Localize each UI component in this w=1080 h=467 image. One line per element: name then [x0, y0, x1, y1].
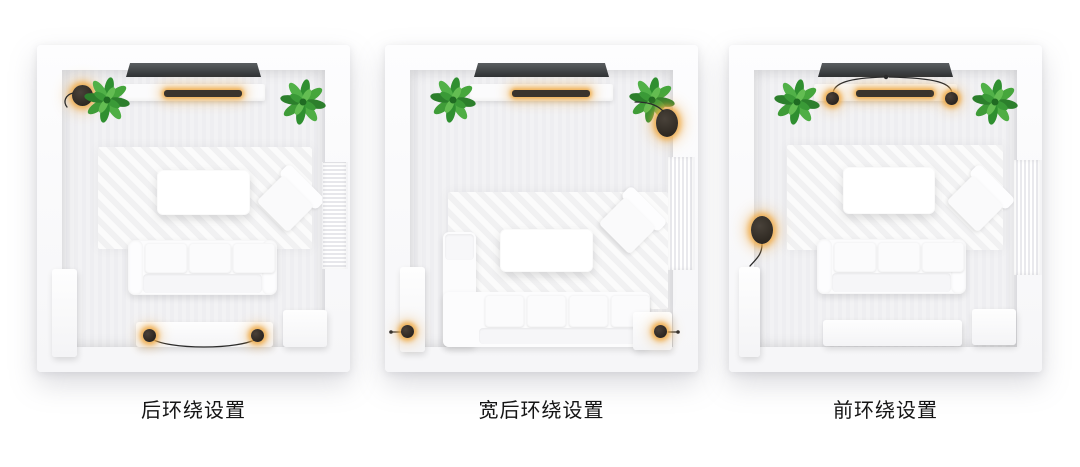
- tall-cabinet: [400, 267, 425, 352]
- rear-surround-speaker-icon: [251, 329, 264, 342]
- front-surround-speaker-icon: [826, 92, 839, 105]
- room-wide-rear-surround: [385, 45, 698, 372]
- wall-curtain: [668, 157, 695, 270]
- room-front-surround: [729, 45, 1042, 372]
- plant-icon: [279, 78, 327, 126]
- sofa-cushion: [922, 242, 964, 272]
- sofa-cushion: [878, 242, 920, 272]
- sofa-cushion: [233, 243, 275, 273]
- soundbar-icon: [856, 90, 934, 97]
- sofa-cushion: [834, 242, 876, 272]
- coffee-table: [843, 167, 935, 214]
- soundbar-icon: [164, 90, 242, 97]
- plant-icon: [971, 78, 1019, 126]
- room-rear-surround: [37, 45, 350, 372]
- rear-surround-speaker-icon: [143, 329, 156, 342]
- subwoofer-icon: [656, 109, 678, 137]
- wide-surround-speaker-icon: [401, 325, 414, 338]
- side-table: [283, 310, 327, 347]
- front-surround-speaker-icon: [945, 92, 958, 105]
- storage-bench: [823, 320, 962, 346]
- sofa-backrest: [479, 328, 647, 344]
- wide-surround-speaker-icon: [654, 325, 667, 338]
- sofa-cushion: [485, 295, 524, 327]
- subwoofer-icon: [751, 216, 773, 244]
- sofa-backrest: [143, 274, 262, 293]
- caption-rear-surround: 后环绕设置: [37, 394, 350, 423]
- tall-cabinet: [52, 269, 77, 357]
- tv-icon: [818, 63, 953, 77]
- sofa-armrest: [817, 239, 832, 294]
- wall-curtain: [1014, 160, 1042, 275]
- speaker-placement-illustration: 后环绕设置 宽后环绕设置 前环绕设置: [0, 0, 1080, 467]
- soundbar-icon: [512, 90, 590, 97]
- tv-icon: [474, 63, 609, 77]
- sofa-armrest: [128, 240, 143, 295]
- plant-icon: [83, 76, 131, 124]
- sofa-corner-cushion: [445, 234, 474, 260]
- sofa-cushion: [189, 243, 231, 273]
- sofa-cushion: [569, 295, 608, 327]
- coffee-table: [157, 170, 250, 215]
- caption-wide-rear-surround: 宽后环绕设置: [385, 394, 698, 423]
- tv-icon: [126, 63, 261, 77]
- side-table: [972, 309, 1016, 345]
- three-seat-sofa: [128, 240, 277, 295]
- plant-icon: [429, 76, 477, 124]
- wall-radiator: [322, 162, 348, 269]
- corner-sectional-sofa: [443, 232, 650, 347]
- plant-icon: [773, 78, 821, 126]
- caption-front-surround: 前环绕设置: [729, 394, 1042, 423]
- three-seat-sofa: [817, 239, 966, 294]
- tall-cabinet: [739, 267, 760, 357]
- sofa-cushion: [527, 295, 566, 327]
- sofa-backrest: [832, 273, 951, 292]
- sofa-cushion: [145, 243, 187, 273]
